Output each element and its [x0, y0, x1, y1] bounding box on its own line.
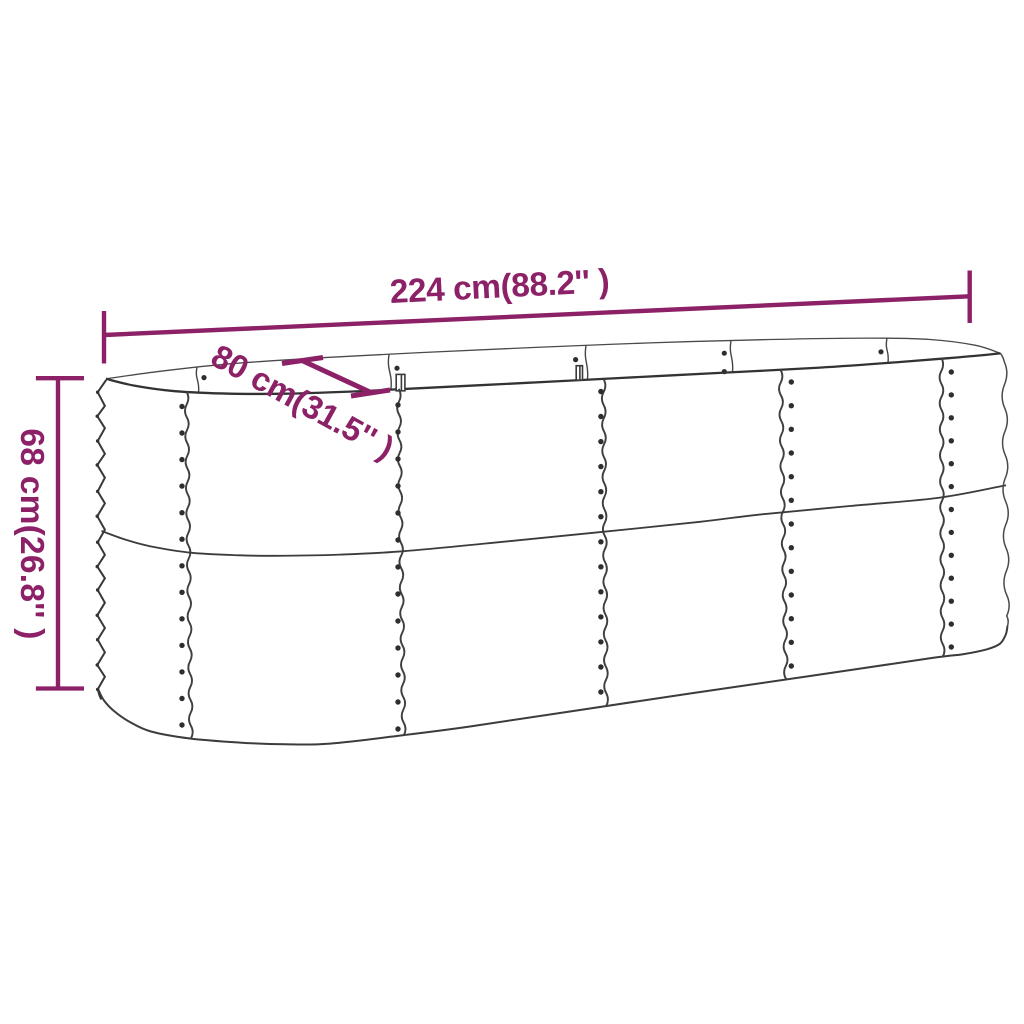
svg-text:68 cm(26.8'' ): 68 cm(26.8'' ) [13, 428, 50, 639]
